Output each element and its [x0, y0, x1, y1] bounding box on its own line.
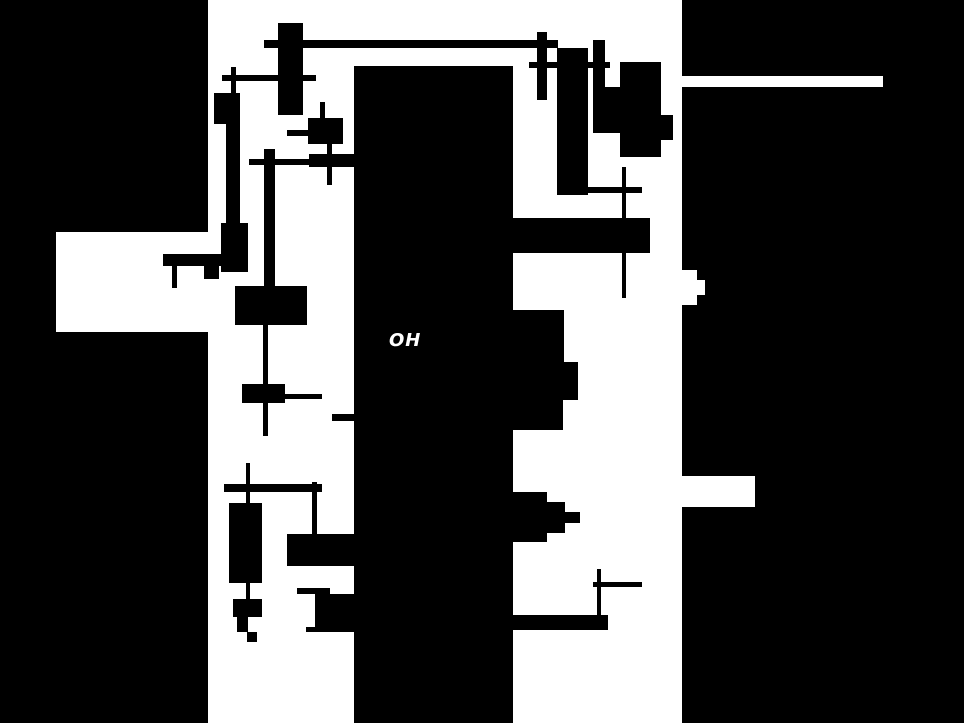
footprint-h5 — [233, 599, 262, 617]
road-h3-vertical — [312, 482, 317, 535]
left-black-panel — [0, 0, 208, 723]
footprint-q1 — [513, 492, 547, 542]
right-black-panel — [682, 0, 964, 723]
footprint-c1 — [214, 93, 240, 124]
footprint-p2 — [564, 362, 578, 400]
road-r-vertical — [597, 569, 601, 617]
road-a-horizontal — [264, 40, 558, 48]
footprint-f2 — [235, 286, 307, 325]
road-d-vertical-up — [320, 102, 325, 118]
footprint-c2 — [221, 223, 248, 272]
road-e-horizontal — [249, 159, 309, 165]
footprint-h6-step — [237, 617, 248, 632]
road-n-horizontal — [588, 187, 642, 193]
right-panel-road-stripe — [682, 76, 883, 87]
footprint-m-vbar — [593, 40, 605, 107]
footprint-e — [309, 154, 354, 167]
road-d-horizontal — [287, 130, 308, 136]
footprint-j-step — [306, 627, 315, 632]
road-f-vertical — [263, 325, 268, 436]
road-r-horizontal — [593, 582, 642, 587]
road-c-vertical — [172, 266, 177, 288]
footprint-i — [287, 534, 354, 566]
footprint-m-big — [620, 62, 661, 157]
footprint-c-small — [204, 265, 219, 279]
right-panel-notch-a1 — [682, 270, 697, 305]
footprint-j-main — [315, 594, 354, 632]
footprint-a-body — [278, 23, 303, 115]
footprint-p3 — [513, 400, 563, 430]
map-canvas[interactable]: OH — [0, 0, 964, 723]
footprint-d — [308, 118, 343, 144]
footprint-f-bar — [264, 149, 275, 288]
footprint-q2 — [547, 502, 565, 533]
road-f3-horizontal — [265, 394, 322, 399]
footprint-m-bump — [661, 115, 673, 140]
right-panel-notch-b — [682, 476, 755, 507]
footprint-q3 — [565, 512, 580, 523]
central-black-bar — [354, 66, 513, 723]
road-b-horizontal — [222, 75, 316, 81]
road-h1-vertical — [246, 463, 250, 503]
footprint-p1 — [513, 310, 564, 400]
right-panel-notch-a2 — [697, 280, 705, 295]
footprint-s-bar — [513, 615, 608, 630]
left-panel-notch — [56, 232, 208, 332]
state-label-oh: OH — [389, 332, 421, 350]
footprint-l-tall — [557, 48, 588, 195]
footprint-h4-body — [229, 503, 262, 583]
footprint-h7-tiny — [247, 632, 257, 642]
footprint-o-band — [513, 218, 650, 253]
road-g-horizontal — [332, 414, 354, 421]
road-h2-horizontal — [224, 484, 322, 492]
footprint-c1-bar — [226, 124, 240, 223]
